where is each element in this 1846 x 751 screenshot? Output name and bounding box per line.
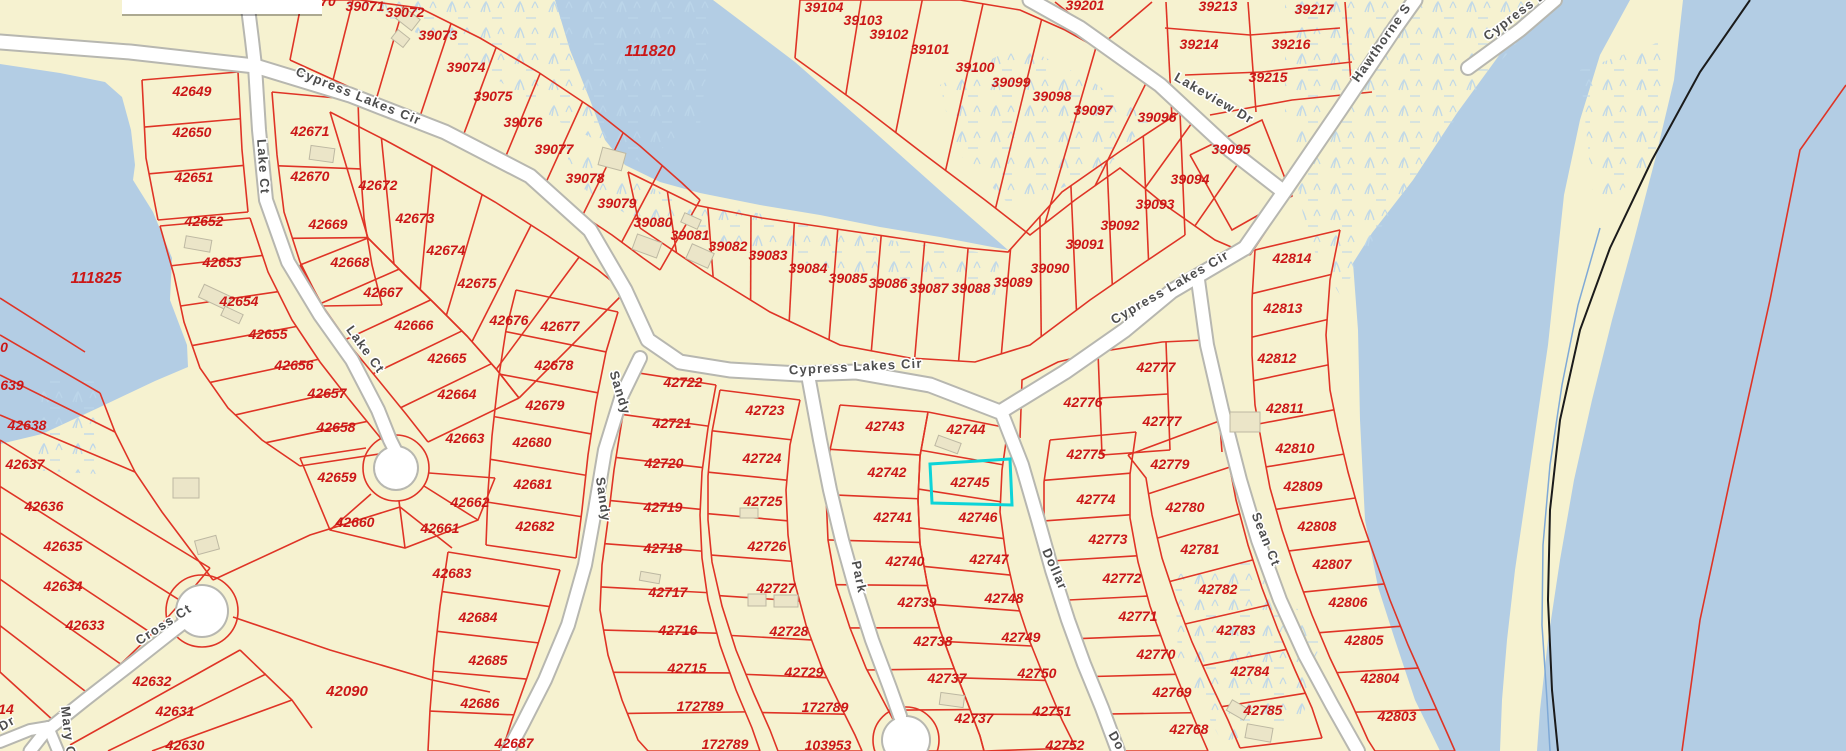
parcel-label-42631: 42631 [155, 703, 195, 719]
parcel-label-39076: 39076 [504, 114, 543, 130]
parcel-label-39072: 39072 [386, 4, 425, 20]
parcel-label-42668: 42668 [330, 254, 370, 270]
parcel-label-42779: 42779 [1150, 456, 1190, 472]
parcel-label-42664: 42664 [437, 386, 477, 402]
building-footprint-0 [309, 145, 335, 162]
parcel-label-39083: 39083 [749, 247, 788, 263]
parcel-label-111820: 111820 [624, 43, 675, 60]
parcel-label-42090: 42090 [325, 683, 368, 700]
parcel-label-42726: 42726 [747, 538, 787, 554]
parcel-map-canvas[interactable]: 4264942650426514265242653426544265542656… [0, 0, 1846, 751]
parcel-label-42739: 42739 [897, 594, 937, 610]
parcel-label-42803: 42803 [1377, 708, 1417, 724]
parcel-label-172789: 172789 [802, 699, 849, 715]
parcel-label-42813: 42813 [1263, 300, 1303, 316]
parcel-label-42718: 42718 [643, 540, 683, 556]
parcel-label-42742: 42742 [867, 464, 907, 480]
parcel-label-42737: 42737 [927, 670, 968, 686]
parcel-label-42715: 42715 [667, 660, 707, 676]
parcel-label-39073: 39073 [419, 27, 458, 43]
parcel-line [322, 305, 382, 306]
parcel-label-42681: 42681 [513, 476, 553, 492]
building-footprint-14 [774, 595, 798, 607]
parcel-label-42746: 42746 [958, 509, 998, 525]
parcel-label-42663: 42663 [445, 430, 485, 446]
parcel-label-39082: 39082 [709, 238, 748, 254]
parcel-label-172789: 172789 [677, 698, 724, 714]
parcel-label-42725: 42725 [743, 493, 783, 509]
parcel-label-42659: 42659 [317, 469, 357, 485]
parcel-label-42649: 42649 [172, 83, 212, 99]
parcel-label-42748: 42748 [984, 590, 1024, 606]
parcel-label-42773: 42773 [1088, 531, 1128, 547]
parcel-label-42738: 42738 [913, 633, 953, 649]
parcel-label-39085: 39085 [829, 270, 868, 286]
parcel-label-39213: 39213 [1199, 0, 1238, 14]
parcel-label-42673: 42673 [395, 210, 435, 226]
parcel-label-42775: 42775 [1066, 446, 1106, 462]
parcel-label-42805: 42805 [1344, 632, 1384, 648]
parcel-label-39104: 39104 [805, 0, 844, 15]
parcel-label-42772: 42772 [1102, 570, 1142, 586]
parcel-label-42635: 42635 [43, 538, 83, 554]
parcel-label-42809: 42809 [1283, 478, 1323, 494]
parcel-label-39086: 39086 [869, 275, 908, 291]
parcel-label-42721: 42721 [652, 415, 692, 431]
parcel-label-42737: 42737 [954, 710, 995, 726]
parcel-label-39101: 39101 [911, 41, 950, 57]
parcel-label-0: 0 [0, 339, 8, 355]
building-footprint-18 [1230, 412, 1260, 432]
parcel-label-42776: 42776 [1063, 394, 1103, 410]
parcel-label-42665: 42665 [427, 350, 467, 366]
parcel-label-42674: 42674 [426, 242, 466, 258]
parcel-label-42744: 42744 [946, 421, 986, 437]
parcel-label-42637: 42637 [5, 456, 46, 472]
parcel-label-103953: 103953 [805, 737, 852, 751]
parcel-label-42684: 42684 [458, 609, 498, 625]
parcel-label-42812: 42812 [1257, 350, 1297, 366]
parcel-label-42752: 42752 [1045, 737, 1085, 751]
parcel-label-42784: 42784 [1230, 663, 1270, 679]
parcel-label-39078: 39078 [566, 170, 605, 186]
parcel-label-39093: 39093 [1136, 196, 1175, 212]
parcel-label-42653: 42653 [202, 254, 242, 270]
parcel-label-39074: 39074 [447, 59, 486, 75]
parcel-label-42810: 42810 [1275, 440, 1315, 456]
parcel-label-39096: 39096 [1138, 109, 1177, 125]
parcel-label-42651: 42651 [174, 169, 214, 185]
parcel-label-42683: 42683 [432, 565, 472, 581]
parcel-label-42652: 42652 [184, 213, 224, 229]
parcel-label-39099: 39099 [992, 74, 1031, 90]
parcel-label-39079: 39079 [598, 195, 637, 211]
parcel-label-42656: 42656 [274, 357, 314, 373]
parcel-label-42811: 42811 [1265, 400, 1304, 416]
parcel-label-42768: 42768 [1169, 721, 1209, 737]
parcel-label-42667: 42667 [363, 284, 404, 300]
parcel-label-42804: 42804 [1360, 670, 1400, 686]
parcel-label-42682: 42682 [515, 518, 555, 534]
parcel-label-42716: 42716 [658, 622, 698, 638]
parcel-label-42686: 42686 [460, 695, 500, 711]
parcel-label-42727: 42727 [756, 580, 797, 596]
parcel-label-42633: 42633 [65, 617, 105, 633]
overlay-box[interactable] [122, 0, 322, 16]
parcel-label-39077: 39077 [535, 141, 575, 157]
parcel-label-39089: 39089 [994, 274, 1033, 290]
parcel-label-42771: 42771 [1118, 608, 1158, 624]
parcel-label-42717: 42717 [648, 584, 689, 600]
parcel-label-42650: 42650 [172, 124, 212, 140]
parcel-label-39215: 39215 [1249, 69, 1288, 85]
parcel-label-39071: 39071 [346, 0, 385, 14]
parcel-label-39094: 39094 [1171, 171, 1210, 187]
parcel-label-42658: 42658 [316, 419, 356, 435]
parcel-label-42749: 42749 [1001, 629, 1041, 645]
parcel-label-39098: 39098 [1033, 88, 1072, 104]
parcel-label-42655: 42655 [248, 326, 288, 342]
parcel-label-42719: 42719 [643, 499, 683, 515]
parcel-label-42672: 42672 [358, 177, 398, 193]
parcel-label-42660: 42660 [335, 514, 375, 530]
parcel-label-42720: 42720 [644, 455, 684, 471]
parcel-label-42676: 42676 [489, 312, 529, 328]
parcel-label-39217: 39217 [1295, 1, 1335, 17]
parcel-label-42780: 42780 [1165, 499, 1205, 515]
parcel-label-42782: 42782 [1198, 581, 1238, 597]
parcel-label-111825: 111825 [70, 270, 122, 287]
parcel-label-42785: 42785 [1243, 702, 1283, 718]
parcel-label-42661: 42661 [420, 520, 460, 536]
parcel-label-42751: 42751 [1032, 703, 1072, 719]
parcel-label-42783: 42783 [1216, 622, 1256, 638]
parcel-label-42729: 42729 [784, 664, 824, 680]
parcel-label-42670: 42670 [290, 168, 330, 184]
parcel-label-39214: 39214 [1180, 36, 1219, 52]
parcel-label-39075: 39075 [474, 88, 513, 104]
parcel-label-39097: 39097 [1074, 102, 1114, 118]
parcel-label-42741: 42741 [873, 509, 913, 525]
parcel-label-42777: 42777 [1136, 359, 1177, 375]
building-footprint-10 [173, 478, 199, 498]
parcel-label-42777: 42777 [1142, 413, 1183, 429]
parcel-label-42685: 42685 [468, 652, 508, 668]
parcel-label-42675: 42675 [457, 275, 497, 291]
parcel-label-42657: 42657 [307, 385, 348, 401]
parcel-label-42666: 42666 [394, 317, 434, 333]
parcel-label-42781: 42781 [1180, 541, 1220, 557]
parcel-label-39081: 39081 [671, 227, 710, 243]
parcel-label-42724: 42724 [742, 450, 782, 466]
parcel-label-39201: 39201 [1066, 0, 1105, 13]
parcel-label-42806: 42806 [1328, 594, 1368, 610]
parcel-label-42774: 42774 [1076, 491, 1116, 507]
parcel-label-42632: 42632 [132, 673, 172, 689]
parcel-label-42743: 42743 [865, 418, 905, 434]
parcel-label-39088: 39088 [952, 280, 991, 296]
parcel-label-172789: 172789 [702, 736, 749, 751]
parcel-label-42728: 42728 [769, 623, 809, 639]
parcel-label-42679: 42679 [525, 397, 565, 413]
parcel-label-42722: 42722 [663, 374, 703, 390]
parcel-label-42662: 42662 [450, 494, 490, 510]
parcel-label-42750: 42750 [1017, 665, 1057, 681]
parcel-label-42723: 42723 [745, 402, 785, 418]
parcel-label-42687: 42687 [494, 735, 535, 751]
parcel-label-39090: 39090 [1031, 260, 1070, 276]
parcel-label-42654: 42654 [219, 293, 259, 309]
parcel-label-39102: 39102 [870, 26, 909, 42]
parcel-label-39095: 39095 [1212, 141, 1251, 157]
parcel-line [292, 238, 367, 239]
parcel-label-42770: 42770 [1136, 646, 1176, 662]
parcel-label-39080: 39080 [634, 214, 673, 230]
parcel-label-42669: 42669 [308, 216, 348, 232]
parcel-label-42747: 42747 [969, 551, 1010, 567]
parcel-label-70: 70 [320, 0, 336, 9]
parcel-label-42678: 42678 [534, 357, 574, 373]
parcel-label-42745: 42745 [950, 474, 990, 490]
parcel-label-639: 639 [0, 377, 24, 393]
building-footprint-12 [740, 508, 758, 518]
parcel-label-42769: 42769 [1152, 684, 1192, 700]
lake-ct-bulb[interactable] [375, 447, 417, 489]
parcel-label-39084: 39084 [789, 260, 828, 276]
parcel-label-42677: 42677 [540, 318, 581, 334]
parcel-label-42680: 42680 [512, 434, 552, 450]
parcel-label-42807: 42807 [1312, 556, 1353, 572]
parcel-label-39103: 39103 [844, 12, 883, 28]
parcel-label-42814: 42814 [1272, 250, 1312, 266]
parcel-label-39100: 39100 [956, 59, 995, 75]
parcel-label-42630: 42630 [165, 737, 205, 751]
parcel-label-42634: 42634 [43, 578, 83, 594]
parcel-label-39087: 39087 [910, 280, 950, 296]
parcel-label-42740: 42740 [885, 553, 925, 569]
parcel-label-39091: 39091 [1066, 236, 1105, 252]
parcel-label-42638: 42638 [7, 417, 47, 433]
parcel-label-39216: 39216 [1272, 36, 1311, 52]
parcel-label-42636: 42636 [24, 498, 64, 514]
parcel-label-39092: 39092 [1101, 217, 1140, 233]
parcel-map-viewport[interactable]: 4264942650426514265242653426544265542656… [0, 0, 1846, 751]
parcel-label-42671: 42671 [290, 123, 330, 139]
parcel-label-42808: 42808 [1297, 518, 1337, 534]
